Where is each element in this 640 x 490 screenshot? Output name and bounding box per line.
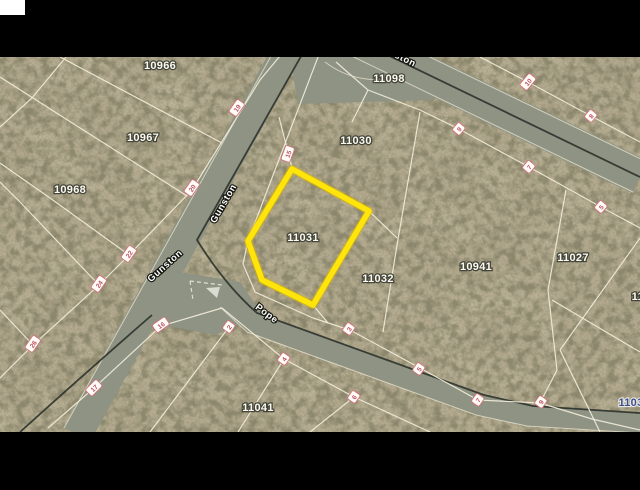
map-viewport: 19202224261516171089752463579 GunstonGun… bbox=[0, 0, 640, 490]
parcel-label-11027: 11027 bbox=[557, 252, 588, 264]
parcel-label-11041: 11041 bbox=[242, 402, 273, 414]
parcel-label-10967: 10967 bbox=[127, 132, 159, 144]
parcel-label-10941: 10941 bbox=[460, 261, 492, 273]
parcel-label-10966: 10966 bbox=[144, 60, 176, 72]
parcel-label-10968: 10968 bbox=[54, 184, 86, 196]
parcel-label-110: 110 bbox=[632, 291, 640, 303]
parcel-label-1103: 1103 bbox=[618, 397, 640, 409]
aerial-map[interactable]: 19202224261516171089752463579 GunstonGun… bbox=[0, 0, 640, 490]
bottom-letterbox bbox=[0, 432, 640, 490]
parcel-label-11031: 11031 bbox=[287, 232, 318, 244]
top-letterbox bbox=[0, 0, 640, 57]
parcel-label-11098: 11098 bbox=[373, 73, 404, 85]
corner-white-fragment bbox=[0, 0, 25, 15]
parcel-label-11032: 11032 bbox=[362, 273, 393, 285]
parcel-label-11030: 11030 bbox=[340, 135, 371, 147]
map-content: 19202224261516171089752463579 GunstonGun… bbox=[0, 17, 640, 435]
